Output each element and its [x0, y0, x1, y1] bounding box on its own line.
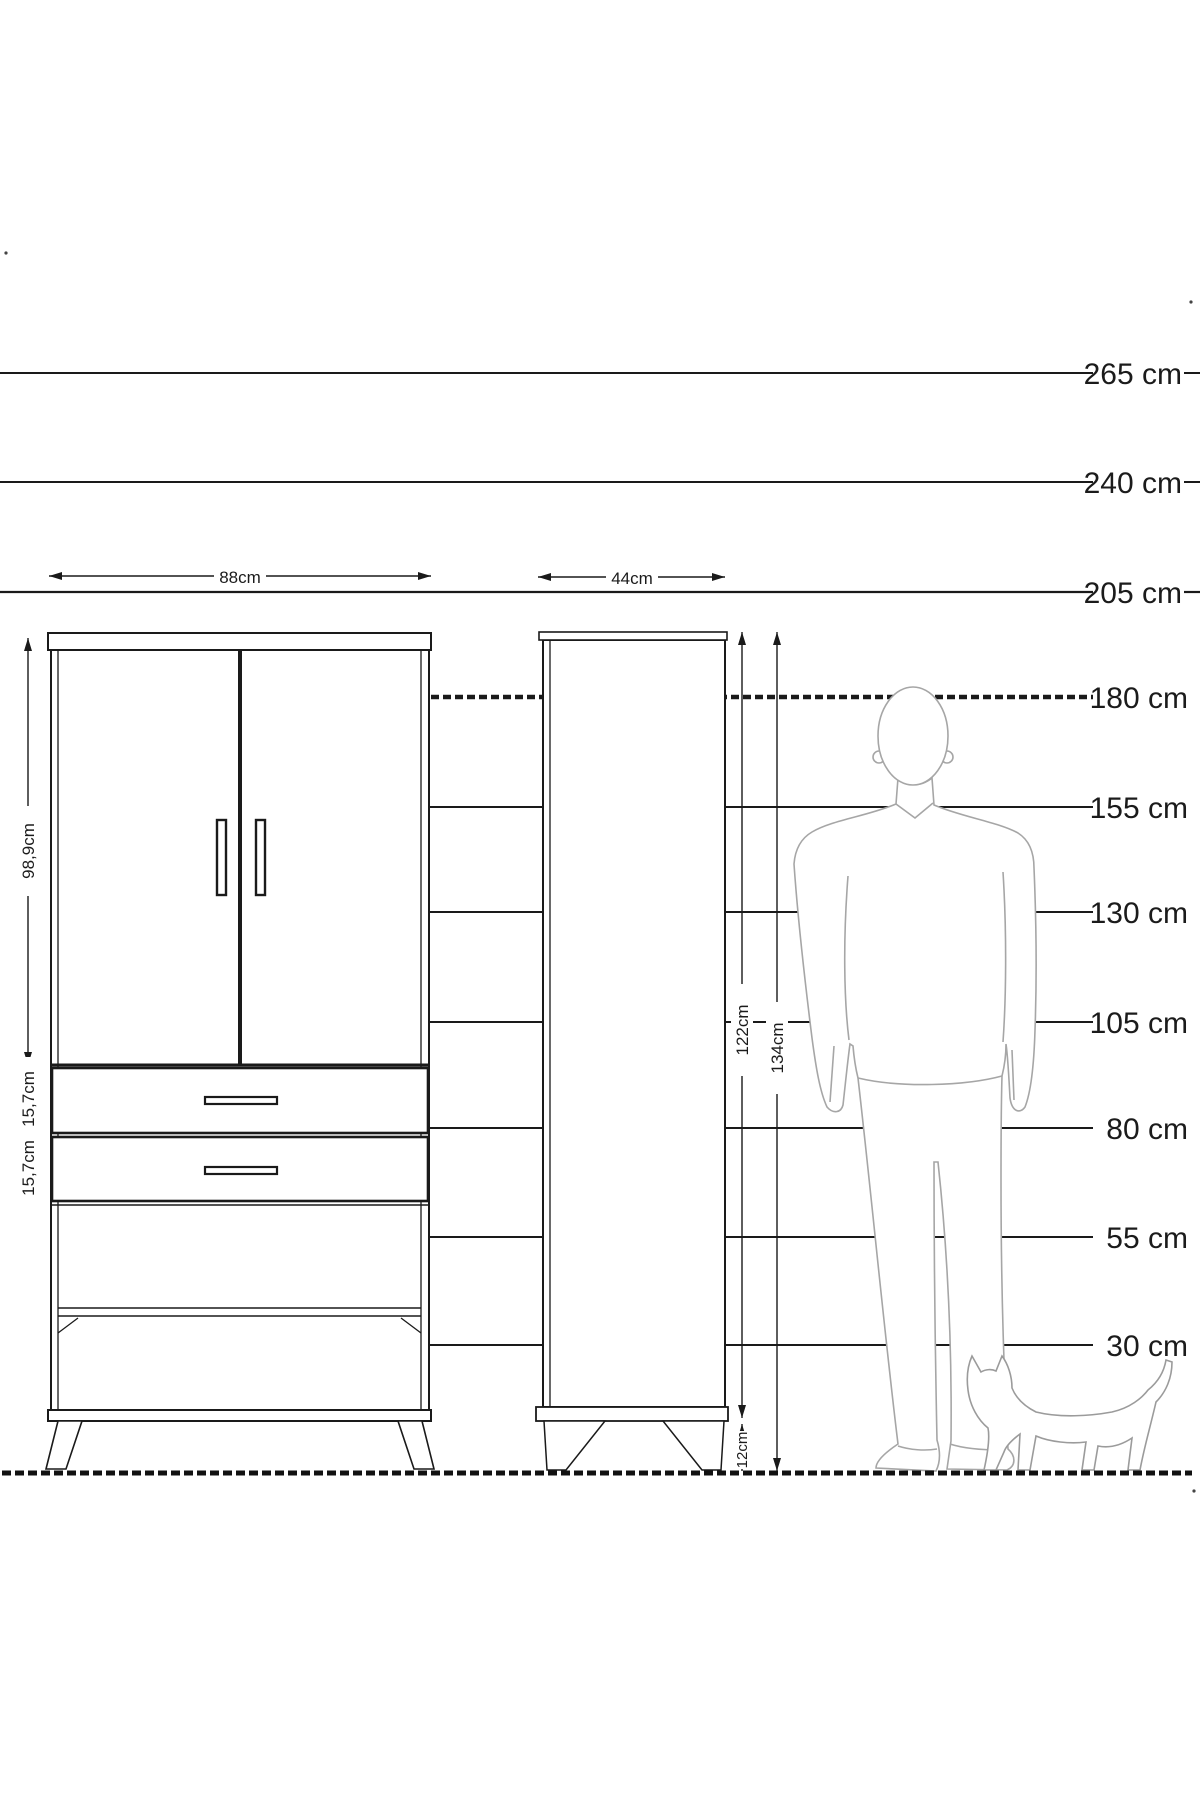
cabinet-leg-right: [663, 1421, 724, 1470]
furniture-dimension-diagram: 88cm 44cm 98,9cm 15,7cm 15,7cm: [0, 0, 1200, 1800]
arrow-left-icon: [49, 572, 62, 580]
wardrobe-drawer-bottom-label: 15,7cm: [19, 1140, 38, 1196]
cabinet-top-board: [539, 632, 727, 640]
cabinet-leg-height-label: 12cm: [734, 1432, 751, 1469]
wardrobe-door-handle-right: [256, 820, 265, 895]
wardrobe-top-board: [48, 633, 431, 650]
cabinet-total-height-label: 134cm: [768, 1022, 787, 1073]
cabinet-bottom-board: [536, 1407, 728, 1421]
wardrobe-drawer-handle-bottom: [205, 1167, 277, 1174]
dim-wardrobe-width: 88cm: [49, 564, 431, 588]
arrow-right-icon: [712, 573, 725, 581]
wardrobe-leg-left: [46, 1421, 82, 1469]
height-label-240: 240 cm: [1084, 467, 1182, 500]
height-label-180: 180 cm: [1090, 682, 1188, 715]
height-label-105: 105 cm: [1090, 1007, 1188, 1040]
man-silhouette: [794, 687, 1036, 1471]
wardrobe-drawer-top-label: 15,7cm: [19, 1071, 38, 1127]
cabinet-leg-left: [544, 1421, 605, 1470]
cabinet-body: [543, 640, 725, 1407]
height-label-205: 205 cm: [1084, 577, 1182, 610]
dim-cabinet-width: 44cm: [538, 565, 725, 589]
wardrobe-door-handle-left: [217, 820, 226, 895]
height-label-30: 30 cm: [1106, 1330, 1188, 1363]
dim-wardrobe-heights: 98,9cm 15,7cm 15,7cm: [17, 638, 39, 1210]
wardrobe-leg-right: [398, 1421, 434, 1469]
wardrobe-drawer-handle-top: [205, 1097, 277, 1104]
height-label-130: 130 cm: [1090, 897, 1188, 930]
wardrobe: [46, 633, 434, 1469]
cabinet-width-label: 44cm: [611, 569, 653, 588]
arrow-down-icon: [773, 1458, 781, 1471]
diagram-canvas: 88cm 44cm 98,9cm 15,7cm 15,7cm: [0, 0, 1200, 1800]
cabinet-body-height-label: 122cm: [733, 1004, 752, 1055]
height-label-155: 155 cm: [1090, 792, 1188, 825]
arrow-up-icon: [24, 638, 32, 651]
wardrobe-bottom-board: [48, 1410, 431, 1421]
arrow-up-icon: [773, 632, 781, 645]
height-label-265: 265 cm: [1084, 358, 1182, 391]
height-label-55: 55 cm: [1106, 1222, 1188, 1255]
man-head: [878, 687, 948, 785]
arrow-down-icon: [738, 1405, 746, 1418]
tall-cabinet: [536, 632, 728, 1470]
cat-silhouette: [967, 1356, 1172, 1470]
wardrobe-width-label: 88cm: [219, 568, 261, 587]
wardrobe-door-height-label: 98,9cm: [19, 823, 38, 879]
height-scale-labels: 265 cm 240 cm 205 cm 180 cm 155 cm 130 c…: [1084, 358, 1188, 1363]
cat-body: [967, 1356, 1172, 1470]
arrow-right-icon: [418, 572, 431, 580]
arrow-left-icon: [538, 573, 551, 581]
height-label-80: 80 cm: [1106, 1113, 1188, 1146]
arrow-up-icon: [738, 632, 746, 645]
